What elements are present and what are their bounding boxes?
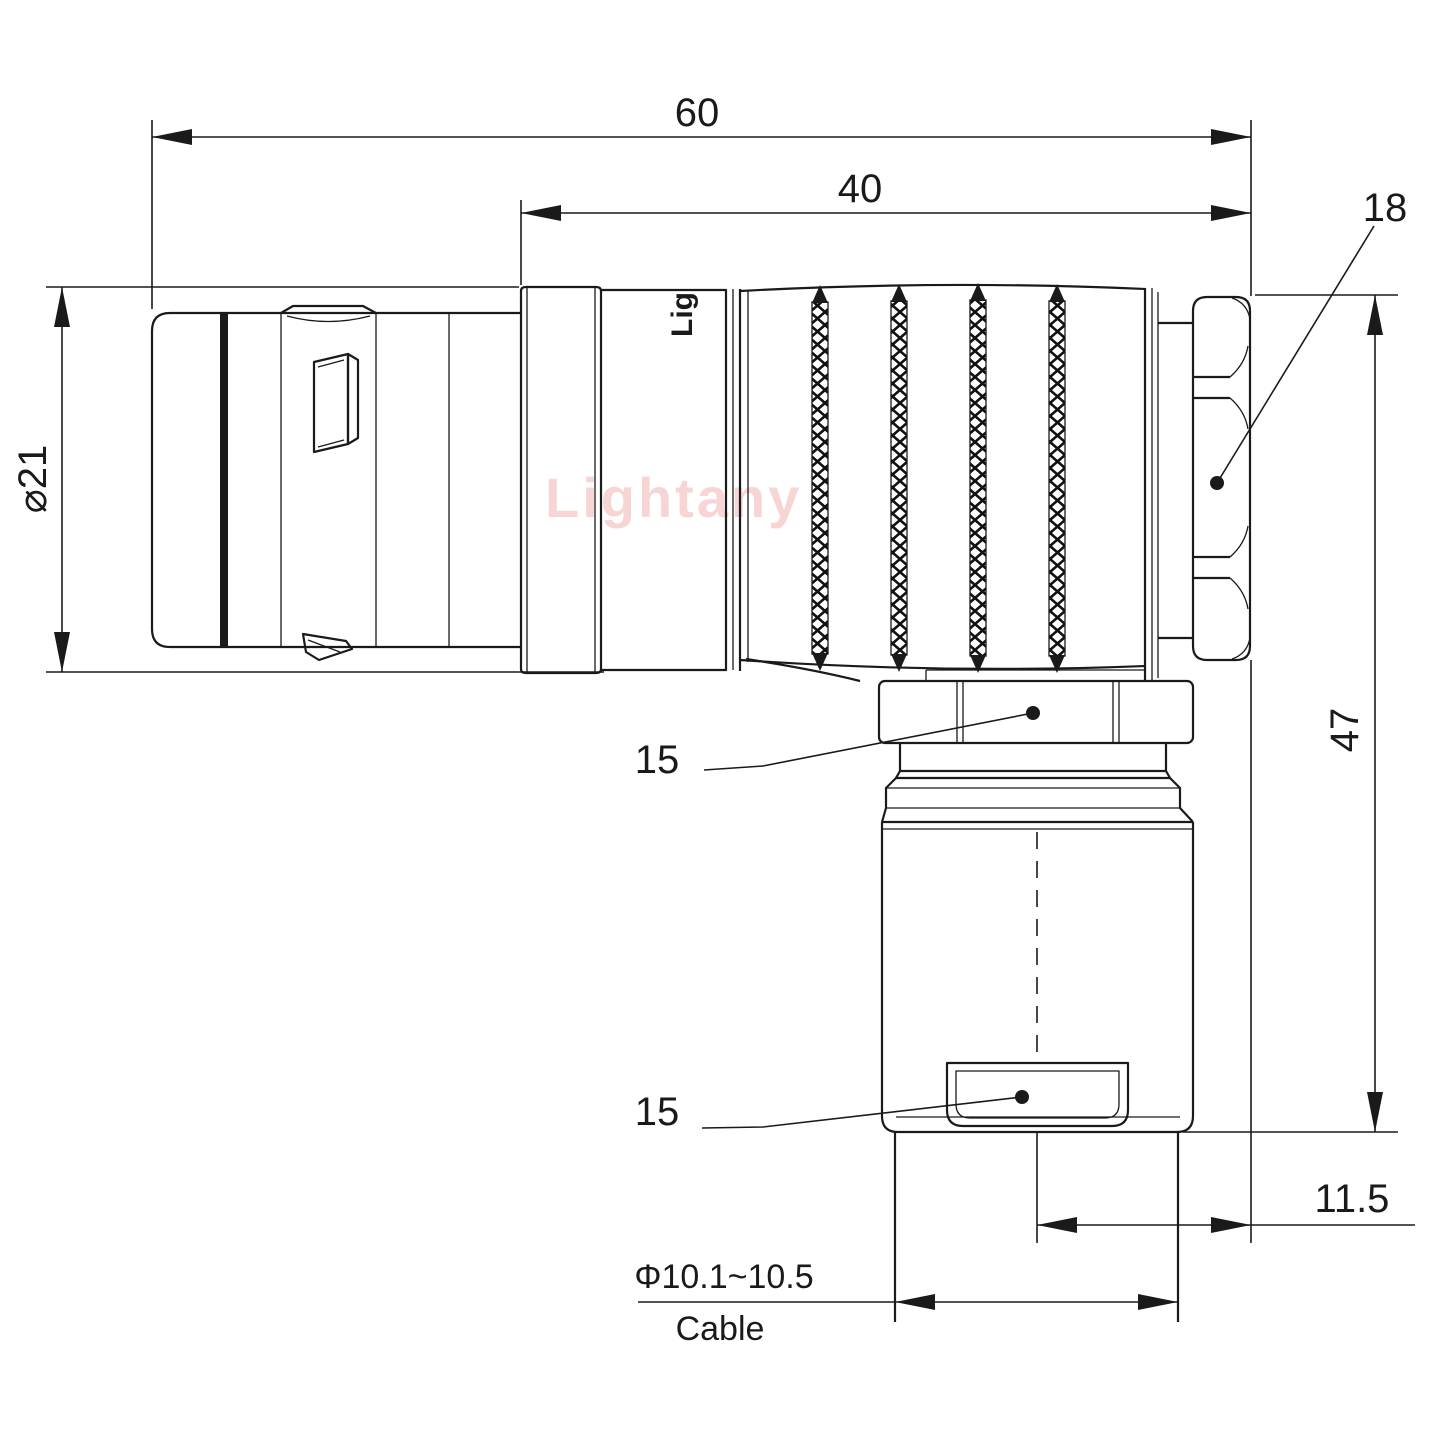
dim-cable-diameter: Φ10.1~10.5 Cable [634,1258,1178,1348]
grip-section [740,283,1158,681]
connector-body: Lig [152,283,1250,1322]
knurl-band [891,284,907,672]
dim-overall-length-label: 60 [675,91,720,135]
leader-dot [1210,476,1224,490]
latch-window [314,354,358,452]
dim-height-label: 47 [1323,708,1367,753]
knurl-band [1049,284,1065,673]
dim-height: 47 [1183,295,1398,1132]
knurl-band [970,283,986,673]
leader-dot [1015,1090,1029,1104]
cable-barrel [882,822,1193,1132]
front-shell [152,306,521,660]
drawing-page: Lightany [0,0,1440,1440]
dim-cable-diameter-label: Φ10.1~10.5 [634,1258,813,1296]
dim-cable-clamp-label: 15 [635,1090,680,1134]
dim-rear-nut-label: 18 [1363,186,1408,230]
elbow [746,659,1145,681]
leader-rear-nut: 18 [1210,186,1407,490]
technical-drawing: Lightany [0,0,1440,1440]
dim-coupling-nut-label: 15 [635,738,680,782]
dim-shell-diameter: ⌀21 [11,287,604,672]
dim-axis-offset: 11.5 [1037,1132,1415,1243]
knurl-band [812,285,828,671]
dim-grip-length: 40 [521,167,1251,285]
leader-dot [1026,706,1040,720]
rear-collar [1158,323,1193,638]
dim-shell-diameter-label: ⌀21 [11,445,55,514]
cable-word-label: Cable [676,1310,765,1348]
body-logo: Lig [666,292,699,337]
strain-relief-rings [882,743,1193,822]
dim-grip-length-label: 40 [838,167,883,211]
watermark: Lightany [545,466,802,529]
dim-axis-offset-label: 11.5 [1315,1177,1390,1221]
shell-groove [220,313,228,647]
leader-cable-clamp: 15 [635,1090,1029,1134]
